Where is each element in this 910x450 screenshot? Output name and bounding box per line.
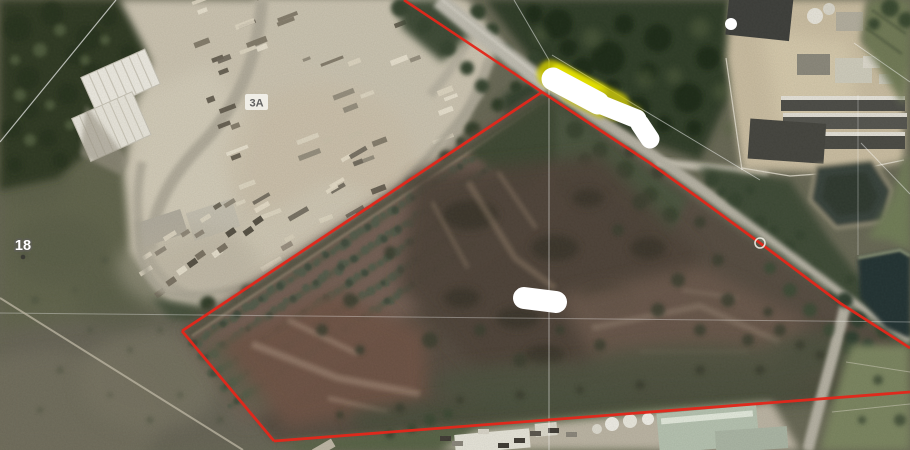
svg-text:3A: 3A — [249, 98, 263, 110]
svg-text:18: 18 — [15, 238, 31, 254]
